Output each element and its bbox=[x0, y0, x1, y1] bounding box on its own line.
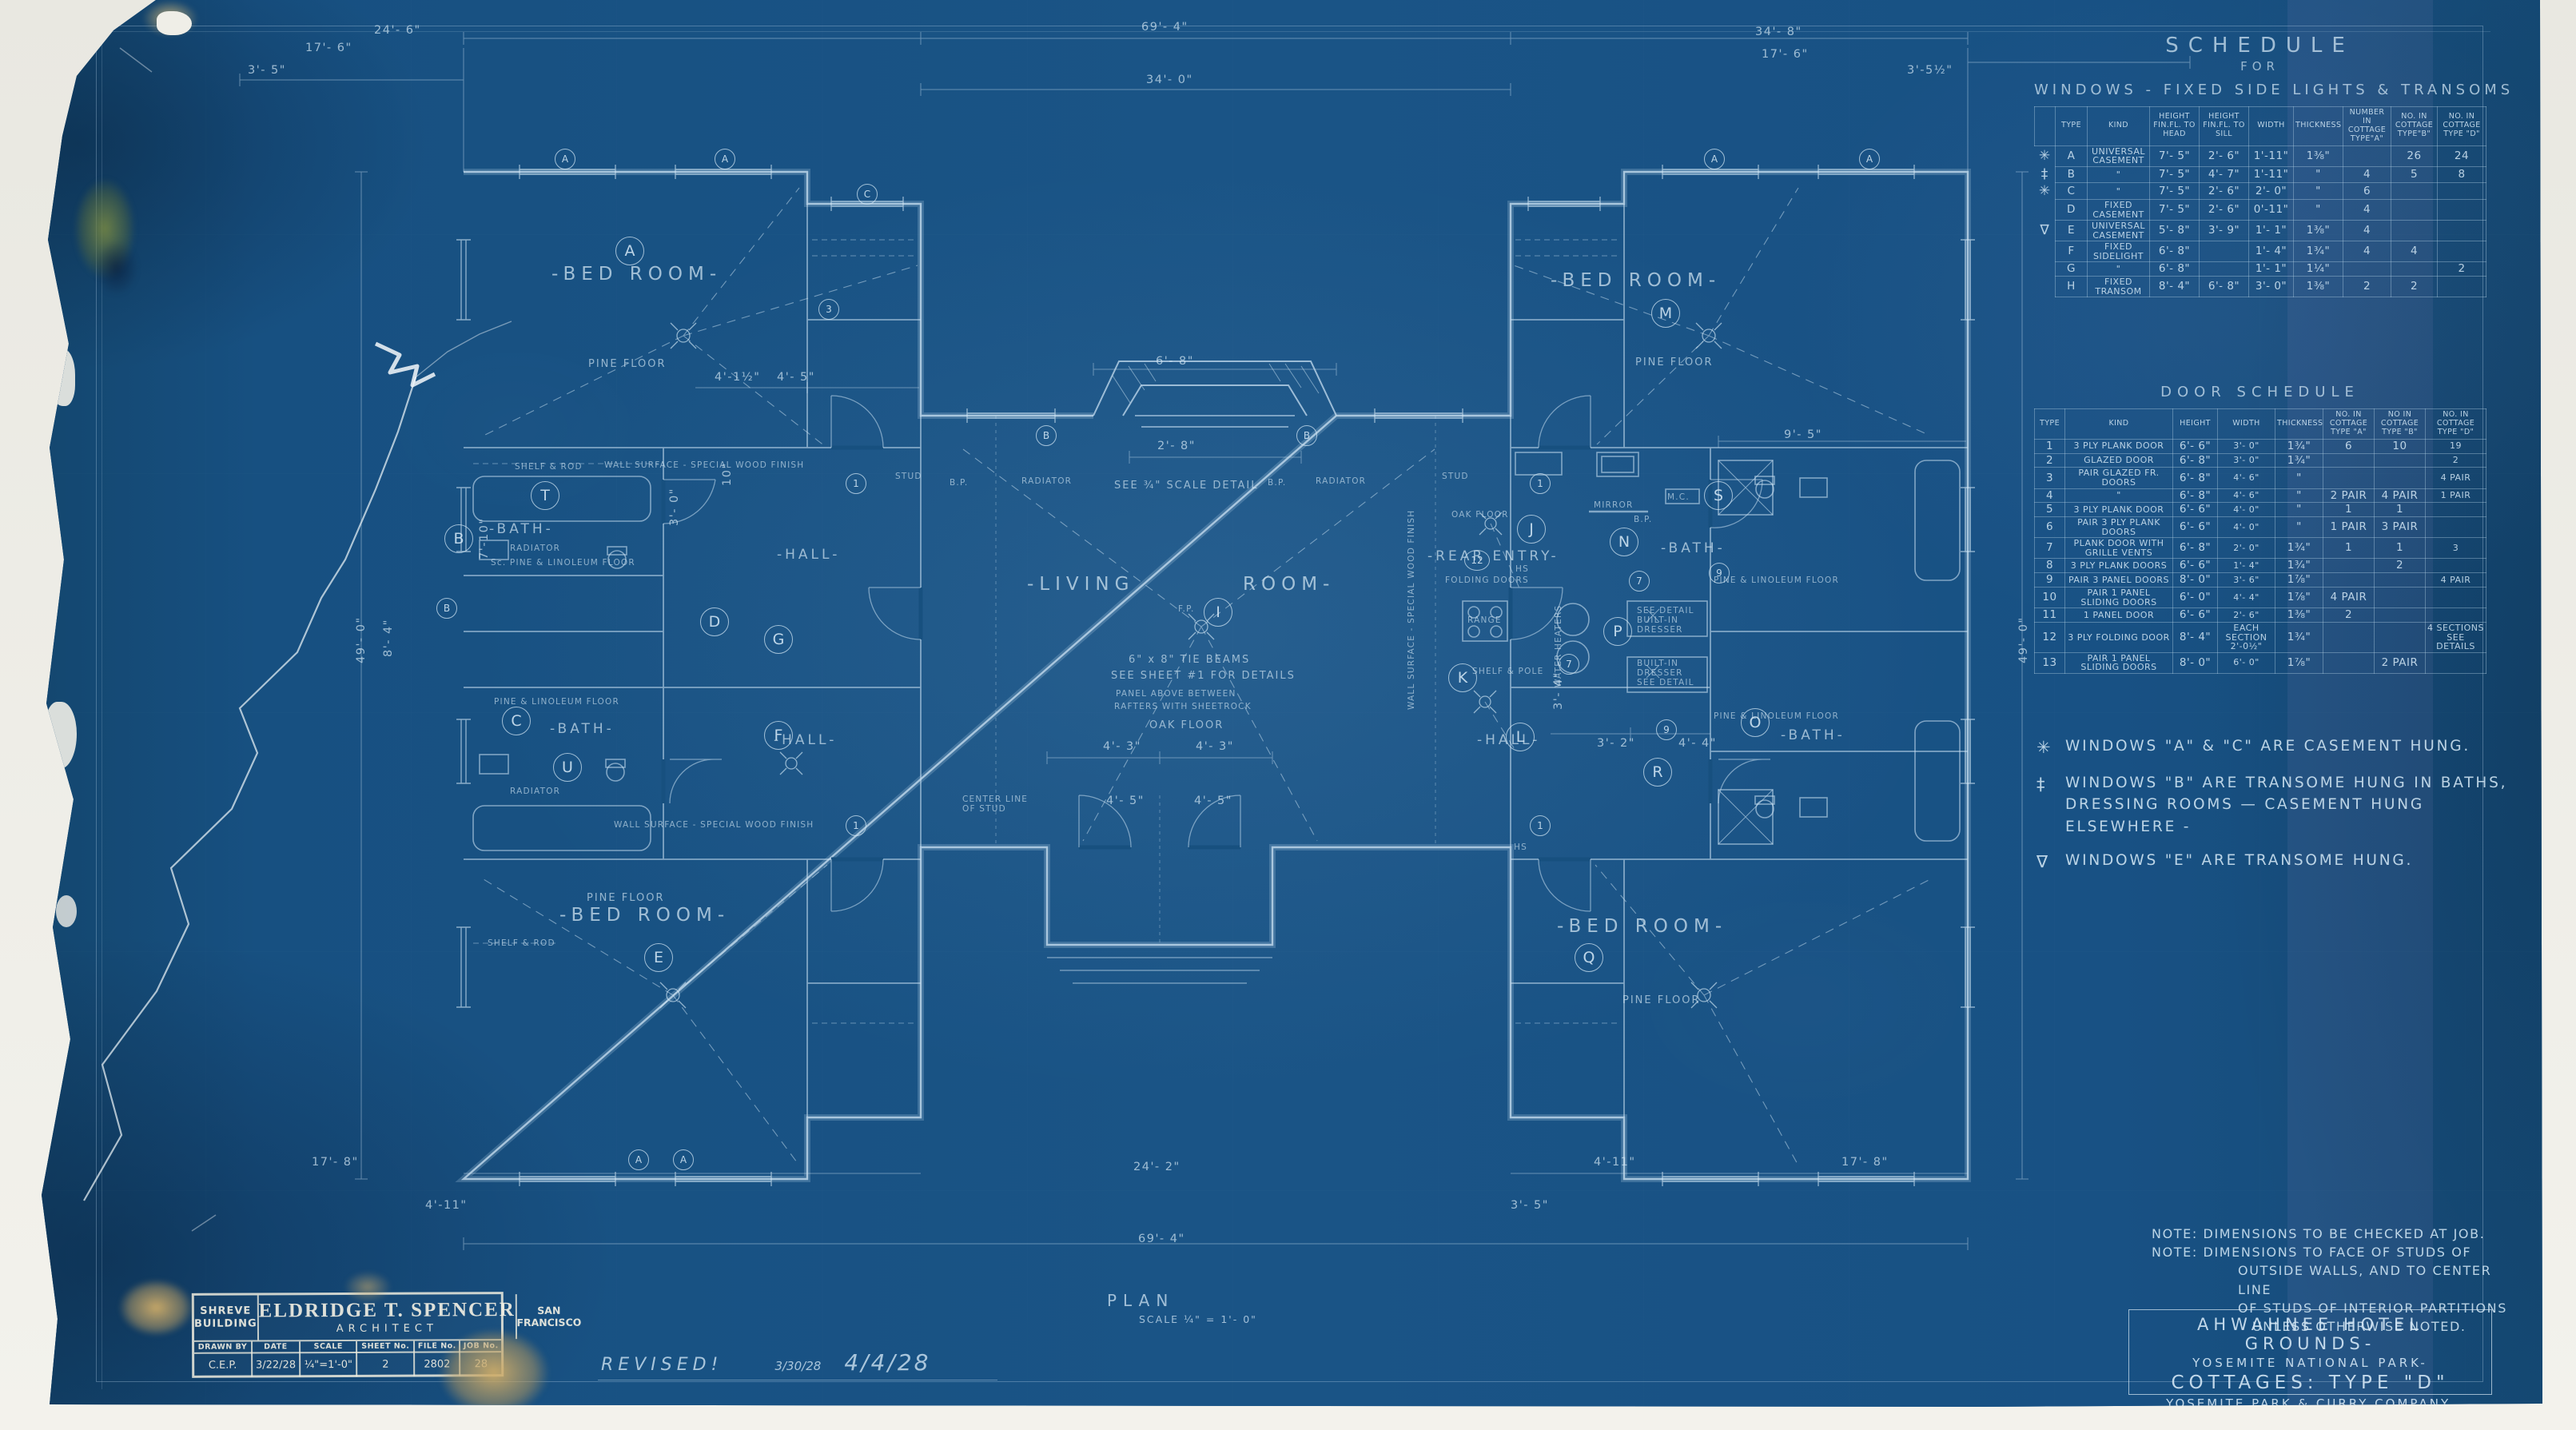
stain-navy bbox=[94, 240, 138, 296]
window-row-count-a: 4 bbox=[2343, 241, 2391, 262]
door-row-width: EACH SECTION 2'-0½" bbox=[2218, 623, 2275, 653]
window-row-height-sill: 6'- 8" bbox=[2200, 277, 2249, 297]
window-row-count-d bbox=[2438, 200, 2486, 221]
door-row-type: 8 bbox=[2035, 559, 2065, 573]
window-mark-a-2: A bbox=[673, 1149, 694, 1170]
window-mark-b-3: B bbox=[436, 598, 457, 619]
window-schedule-table: TYPEKINDHEIGHT FIN.FL. TO HEADHEIGHT FIN… bbox=[2034, 106, 2486, 297]
window-row-type: C bbox=[2056, 183, 2088, 200]
door-row-type: 2 bbox=[2035, 453, 2065, 468]
door-row-height: 6'- 6" bbox=[2173, 559, 2218, 573]
door-schedule-header-cell: NO. IN COTTAGE TYPE "A" bbox=[2323, 409, 2375, 440]
note-radiator-2: RADIATOR bbox=[510, 787, 560, 796]
door-schedule-header-cell: THICKNESS bbox=[2275, 409, 2323, 440]
note-pine-lino-3: PINE & LINOLEUM FLOOR bbox=[494, 697, 619, 707]
porch-steps bbox=[1047, 958, 1272, 983]
door-row-count-a: 1 bbox=[2323, 538, 2375, 559]
window-row-type: G bbox=[2056, 262, 2088, 277]
door-row-width: 6'- 0" bbox=[2218, 652, 2275, 673]
dim-69-4-top: 69'- 4" bbox=[1141, 21, 1188, 34]
note-stud-2: STUD bbox=[1442, 472, 1469, 481]
room-label-bedroom-nw: -BED ROOM- bbox=[551, 264, 722, 285]
window-schedule-header-cell: TYPE bbox=[2056, 107, 2088, 146]
dim-17-6-r: 17'- 6" bbox=[1762, 48, 1809, 61]
door-row-count-d: 4 PAIR bbox=[2426, 573, 2486, 588]
window-row-type: D bbox=[2056, 200, 2088, 221]
window-row-count-b bbox=[2391, 183, 2438, 200]
door-row-height: 6'- 0" bbox=[2173, 588, 2218, 608]
door-row-count-b: 2 bbox=[2375, 559, 2426, 573]
window-row-width: 0'-11" bbox=[2249, 200, 2294, 221]
door-row-count-a: 6 bbox=[2323, 439, 2375, 453]
window-row-count-d bbox=[2438, 277, 2486, 297]
dim-24-6: 24'- 6" bbox=[374, 24, 421, 37]
window-row-thickness: " bbox=[2294, 183, 2343, 200]
door-row-count-b: 1 bbox=[2375, 503, 2426, 517]
door-schedule-table: TYPEKINDHEIGHTWIDTHTHICKNESSNO. IN COTTA… bbox=[2034, 408, 2486, 674]
window-row-count-d bbox=[2438, 183, 2486, 200]
room-circle-o: O bbox=[1741, 708, 1770, 737]
door-mark-1a: 1 bbox=[846, 473, 866, 494]
door-schedule-header-cell: HEIGHT bbox=[2173, 409, 2218, 440]
door-row-type: 9 bbox=[2035, 573, 2065, 588]
door-row-height: 6'- 8" bbox=[2173, 453, 2218, 468]
door-row-type: 1 bbox=[2035, 439, 2065, 453]
door-schedule-row: 10 PAIR 1 PANEL SLIDING DOORS 6'- 0" 4'-… bbox=[2035, 588, 2486, 608]
kitchen-fixtures bbox=[1463, 452, 1699, 673]
door-row-width: 4'- 4" bbox=[2218, 588, 2275, 608]
window-row-count-a: 6 bbox=[2343, 183, 2391, 200]
stamp-field-value: ¼"=1'-0" bbox=[300, 1352, 357, 1376]
window-row-width: 1'-11" bbox=[2249, 166, 2294, 183]
project-line-grounds: AHWAHNEE HOTEL GROUNDS- bbox=[2129, 1315, 2491, 1353]
window-schedule-row: H FIXED TRANSOM 8'- 4" 6'- 8" 3'- 0" 1⅜"… bbox=[2035, 277, 2486, 297]
blueprint-sheet: -BED ROOM- -BED ROOM- -BED ROOM- -BED RO… bbox=[0, 0, 2576, 1430]
room-circle-m: M bbox=[1651, 299, 1680, 328]
note-pine-floor-se: PINE FLOOR bbox=[1622, 994, 1701, 1006]
door-row-height: 6'- 6" bbox=[2173, 439, 2218, 453]
window-row-kind: FIXED SIDELIGHT bbox=[2088, 241, 2150, 262]
stamp-field-value: C.E.P. bbox=[194, 1353, 252, 1377]
window-row-thickness: 1⅜" bbox=[2294, 221, 2343, 241]
room-circle-k: K bbox=[1448, 663, 1477, 692]
door-row-thickness: 1¾" bbox=[2275, 453, 2323, 468]
door-row-kind: PAIR GLAZED FR. DOORS bbox=[2065, 468, 2173, 488]
door-schedule-row: 1 3 PLY PLANK DOOR 6'- 6" 3'- 0" 1¾" 6 1… bbox=[2035, 439, 2486, 453]
door-row-count-d bbox=[2426, 652, 2486, 673]
door-row-thickness: 1⅜" bbox=[2275, 608, 2323, 623]
note-dims-line2: OUTSIDE WALLS, AND TO CENTER LINE bbox=[2152, 1261, 2527, 1298]
window-row-height-sill: 2'- 6" bbox=[2200, 200, 2249, 221]
door-schedule-header-cell: KIND bbox=[2065, 409, 2173, 440]
room-circle-r: R bbox=[1643, 758, 1672, 787]
window-row-height-sill: 4'- 7" bbox=[2200, 166, 2249, 183]
door-mark-9a: 9 bbox=[1709, 563, 1730, 584]
dim-4-5-lv2: 4'- 5" bbox=[1194, 795, 1232, 807]
door-row-thickness: 1¾" bbox=[2275, 559, 2323, 573]
door-row-width: 2'- 6" bbox=[2218, 608, 2275, 623]
note-wall-surface-1: WALL SURFACE - SPECIAL WOOD FINISH bbox=[604, 460, 804, 470]
note-hs-2: HS bbox=[1514, 842, 1527, 852]
hanging-note: ✳ WINDOWS "A" & "C" ARE CASEMENT HUNG. bbox=[2037, 735, 2516, 761]
door-row-height: 8'- 0" bbox=[2173, 652, 2218, 673]
door-schedule-header-cell: NO IN COTTAGE TYPE "B" bbox=[2375, 409, 2426, 440]
door-row-count-a bbox=[2323, 559, 2375, 573]
door-row-count-a: 2 PAIR bbox=[2323, 488, 2375, 503]
door-row-count-b: 1 bbox=[2375, 538, 2426, 559]
closet-shelves bbox=[473, 240, 1619, 1023]
window-row-height-head: 7'- 5" bbox=[2150, 200, 2200, 221]
stamp-field-label: DRAWN BY bbox=[194, 1342, 252, 1353]
window-schedule-row: ✳ C " 7'- 5" 2'- 6" 2'- 0" " 6 bbox=[2035, 183, 2486, 200]
door-swings bbox=[663, 396, 1770, 911]
stain-tan-1 bbox=[118, 1279, 194, 1336]
window-row-thickness: 1¼" bbox=[2294, 262, 2343, 277]
door-schedule-title: DOOR SCHEDULE bbox=[2034, 384, 2486, 400]
window-row-kind: FIXED TRANSOM bbox=[2088, 277, 2150, 297]
door-row-count-d bbox=[2426, 517, 2486, 538]
window-row-height-head: 7'- 5" bbox=[2150, 166, 2200, 183]
door-row-thickness: 1¾" bbox=[2275, 538, 2323, 559]
door-row-count-a: 2 bbox=[2323, 608, 2375, 623]
revision-note: REVISED! 3/30/28 4/4/28 bbox=[601, 1349, 931, 1376]
window-hanging-notes: ✳ WINDOWS "A" & "C" ARE CASEMENT HUNG. ‡… bbox=[2037, 735, 2516, 886]
dim-3-0-l: 3'- 0" bbox=[668, 488, 681, 526]
window-schedule-row: F FIXED SIDELIGHT 6'- 8" 1'- 4" 1¾" 4 4 bbox=[2035, 241, 2486, 262]
stamp-top-row: SHREVE BUILDING ELDRIDGE T. SPENCER ARCH… bbox=[194, 1294, 501, 1342]
window-row-type: H bbox=[2056, 277, 2088, 297]
door-row-thickness: 1⅞" bbox=[2275, 588, 2323, 608]
note-pine-floor-sw: PINE FLOOR bbox=[587, 892, 665, 904]
note-mc: M.C. bbox=[1667, 492, 1690, 502]
architect-title: ARCHITECT bbox=[336, 1323, 438, 1336]
door-row-width: 4'- 0" bbox=[2218, 517, 2275, 538]
dim-4-4: 4'- 4" bbox=[1678, 737, 1717, 750]
door-row-count-a bbox=[2323, 468, 2375, 488]
project-line-cottage-type: COTTAGES: TYPE "D" bbox=[2129, 1372, 2491, 1393]
window-schedule-row: D FIXED CASEMENT 7'- 5" 2'- 6" 0'-11" " … bbox=[2035, 200, 2486, 221]
fireplace bbox=[1093, 361, 1336, 427]
door-schedule-row: 11 1 PANEL DOOR 6'- 6" 2'- 6" 1⅜" 2 bbox=[2035, 608, 2486, 623]
room-label-bath-c: -BATH- bbox=[550, 721, 615, 737]
window-row-count-a: 4 bbox=[2343, 200, 2391, 221]
window-row-mark bbox=[2035, 200, 2056, 221]
stamp-field-label: FILE No. bbox=[414, 1340, 460, 1352]
window-mark-a-5: A bbox=[1704, 149, 1725, 169]
revision-word: REVISED! bbox=[601, 1355, 723, 1375]
interior-walls bbox=[464, 204, 1968, 1117]
room-circle-g: G bbox=[764, 625, 793, 654]
hanging-note-text: WINDOWS "A" & "C" ARE CASEMENT HUNG. bbox=[2065, 735, 2470, 761]
window-schedule-header-cell: KIND bbox=[2088, 107, 2150, 146]
note-water-heaters: WATER HEATERS bbox=[1554, 605, 1563, 687]
dim-24-2: 24'- 2" bbox=[1133, 1161, 1181, 1173]
window-row-count-d: 2 bbox=[2438, 262, 2486, 277]
window-row-width: 1'- 1" bbox=[2249, 221, 2294, 241]
window-row-count-d: 8 bbox=[2438, 166, 2486, 183]
project-title-block: AHWAHNEE HOTEL GROUNDS- YOSEMITE NATIONA… bbox=[2128, 1309, 2492, 1395]
dim-2-8-fp: 2'- 8" bbox=[1157, 440, 1196, 452]
door-row-type: 10 bbox=[2035, 588, 2065, 608]
window-row-count-d bbox=[2438, 221, 2486, 241]
revision-underline bbox=[598, 1380, 997, 1380]
window-row-mark: ✳ bbox=[2035, 145, 2056, 166]
door-schedule: DOOR SCHEDULE TYPEKINDHEIGHTWIDTHTHICKNE… bbox=[2034, 376, 2486, 674]
window-row-mark bbox=[2035, 241, 2056, 262]
door-row-type: 12 bbox=[2035, 623, 2065, 653]
note-shelf-rod-2: SHELF & ROD bbox=[488, 938, 555, 948]
door-schedule-row: 5 3 PLY PLANK DOOR 6'- 6" 4'- 0" " 1 1 bbox=[2035, 503, 2486, 517]
note-tie-beams-1: 6" x 8" TIE BEAMS bbox=[1129, 654, 1250, 666]
window-mark-a-6: A bbox=[1859, 149, 1880, 169]
window-row-count-b bbox=[2391, 200, 2438, 221]
window-row-count-a: 4 bbox=[2343, 221, 2391, 241]
window-row-type: B bbox=[2056, 166, 2088, 183]
door-schedule-row: 3 PAIR GLAZED FR. DOORS 6'- 8" 4'- 6" " … bbox=[2035, 468, 2486, 488]
window-row-count-a: 4 bbox=[2343, 166, 2391, 183]
window-row-count-a bbox=[2343, 262, 2391, 277]
window-row-height-sill bbox=[2200, 262, 2249, 277]
door-row-count-d bbox=[2426, 559, 2486, 573]
window-schedule-header-cell: HEIGHT FIN.FL. TO HEAD bbox=[2150, 107, 2200, 146]
hanging-note: ∇ WINDOWS "E" ARE TRANSOME HUNG. bbox=[2037, 850, 2516, 875]
dim-10: 10" bbox=[721, 462, 734, 486]
door-row-count-a: 1 PAIR bbox=[2323, 517, 2375, 538]
dim-49-0-l: 49'- 0" bbox=[355, 616, 368, 663]
window-row-mark: ✳ bbox=[2035, 183, 2056, 200]
door-row-count-d: 4 PAIR bbox=[2426, 468, 2486, 488]
dim-4-1h-a: 4'-1½" bbox=[715, 371, 760, 384]
window-schedule-header-cell bbox=[2035, 107, 2056, 146]
window-row-kind: " bbox=[2088, 166, 2150, 183]
window-schedule-row: ∇ E UNIVERSAL CASEMENT 5'- 8" 3'- 9" 1'-… bbox=[2035, 221, 2486, 241]
note-center-line: CENTER LINE OF STUD bbox=[962, 795, 1028, 814]
door-schedule-row: 4 " 6'- 8" 4'- 6" " 2 PAIR 4 PAIR 1 PAIR bbox=[2035, 488, 2486, 503]
door-mark-1b: 1 bbox=[846, 815, 866, 836]
dim-4-3-2: 4'- 3" bbox=[1196, 740, 1234, 753]
note-pine-lino-1: PINE & LINOLEUM FLOOR bbox=[1714, 576, 1839, 585]
window-mark-a-1: A bbox=[628, 1149, 649, 1170]
window-row-height-head: 8'- 4" bbox=[2150, 277, 2200, 297]
window-row-height-head: 7'- 5" bbox=[2150, 183, 2200, 200]
window-row-height-sill: 2'- 6" bbox=[2200, 145, 2249, 166]
room-circle-i: I bbox=[1204, 598, 1232, 627]
door-row-height: 6'- 8" bbox=[2173, 538, 2218, 559]
scanned-blueprint-page: { "plan": { "rooms": { "bed_room": "-BED… bbox=[0, 0, 2576, 1430]
note-radiator-4: RADIATOR bbox=[1316, 476, 1366, 486]
door-row-count-b bbox=[2375, 588, 2426, 608]
dim-4-5-a: 4'- 5" bbox=[777, 371, 815, 384]
note-range: RANGE bbox=[1467, 615, 1502, 625]
door-row-count-d: 3 bbox=[2426, 538, 2486, 559]
door-row-count-b bbox=[2375, 573, 2426, 588]
door-row-kind: PLANK DOOR WITH GRILLE VENTS bbox=[2065, 538, 2173, 559]
window-schedule-title: SCHEDULE bbox=[2034, 34, 2486, 58]
note-pine-floor-nw: PINE FLOOR bbox=[588, 358, 667, 370]
door-row-width: 3'- 0" bbox=[2218, 453, 2275, 468]
door-mark-1c: 1 bbox=[1530, 473, 1551, 494]
door-row-count-a bbox=[2323, 623, 2375, 653]
door-schedule-header-cell: TYPE bbox=[2035, 409, 2065, 440]
door-row-count-b: 10 bbox=[2375, 439, 2426, 453]
note-sc-pine-lino: Sc. PINE & LINOLEUM FLOOR bbox=[491, 558, 635, 568]
door-row-count-b bbox=[2375, 623, 2426, 653]
dim-69-4-bot: 69'- 4" bbox=[1138, 1233, 1185, 1245]
door-schedule-row: 2 GLAZED DOOR 6'- 8" 3'- 0" 1¾" 2 bbox=[2035, 453, 2486, 468]
window-row-width: 2'- 0" bbox=[2249, 183, 2294, 200]
room-circle-b: B bbox=[444, 524, 473, 553]
note-built-in-dresser-2: BUILT-IN DRESSER SEE DETAIL bbox=[1637, 659, 1694, 687]
door-row-kind: 3 PLY PLANK DOORS bbox=[2065, 559, 2173, 573]
door-row-width: 4'- 6" bbox=[2218, 488, 2275, 503]
door-row-count-d: 19 bbox=[2426, 439, 2486, 453]
stamp-city: SAN FRANCISCO bbox=[517, 1294, 581, 1339]
window-schedule-header-cell: HEIGHT FIN.FL. TO SILL bbox=[2200, 107, 2249, 146]
window-row-count-b: 5 bbox=[2391, 166, 2438, 183]
door-mark-1d: 1 bbox=[1530, 815, 1551, 836]
window-mark-b-1: B bbox=[1036, 425, 1057, 446]
note-pine-floor-ne: PINE FLOOR bbox=[1635, 357, 1714, 368]
window-row-mark bbox=[2035, 262, 2056, 277]
door-schedule-row: 13 PAIR 1 PANEL SLIDING DOORS 8'- 0" 6'-… bbox=[2035, 652, 2486, 673]
window-row-kind: UNIVERSAL CASEMENT bbox=[2088, 145, 2150, 166]
stain-green bbox=[74, 177, 136, 280]
door-row-kind: 3 PLY FOLDING DOOR bbox=[2065, 623, 2173, 653]
window-row-height-head: 7'- 5" bbox=[2150, 145, 2200, 166]
room-label-bedroom-sw: -BED ROOM- bbox=[559, 905, 730, 926]
door-schedule-row: 12 3 PLY FOLDING DOOR 8'- 4" EACH SECTIO… bbox=[2035, 623, 2486, 653]
door-row-type: 6 bbox=[2035, 517, 2065, 538]
door-row-height: 6'- 6" bbox=[2173, 503, 2218, 517]
bath-fixtures bbox=[473, 460, 1960, 850]
exterior-walls bbox=[464, 172, 1968, 1179]
note-built-in-dresser-1: SEE DETAIL BUILT-IN DRESSER bbox=[1637, 606, 1694, 635]
window-schedule-for: FOR bbox=[2034, 59, 2486, 74]
dim-34-8: 34'- 8" bbox=[1755, 26, 1802, 38]
door-mark-7a: 7 bbox=[1629, 571, 1650, 592]
plan-caption: PLAN SCALE ¼" = 1'- 0" bbox=[1107, 1291, 1257, 1325]
room-circle-d: D bbox=[700, 607, 729, 636]
door-row-thickness: " bbox=[2275, 503, 2323, 517]
door-schedule-row: 6 PAIR 3 PLY PLANK DOORS 6'- 6" 4'- 0" "… bbox=[2035, 517, 2486, 538]
door-mark-7b: 7 bbox=[1559, 654, 1579, 675]
door-row-kind: GLAZED DOOR bbox=[2065, 453, 2173, 468]
window-schedule-header-row: TYPEKINDHEIGHT FIN.FL. TO HEADHEIGHT FIN… bbox=[2035, 107, 2486, 146]
room-label-hall-1: -HALL- bbox=[777, 547, 840, 563]
dim-3-5h: 3'-5½" bbox=[1907, 64, 1953, 77]
window-row-type: A bbox=[2056, 145, 2088, 166]
door-row-count-b bbox=[2375, 468, 2426, 488]
dim-7-10: 7'-10" bbox=[478, 517, 491, 560]
dim-9-5: 9'- 5" bbox=[1784, 428, 1822, 441]
dim-17-8-bl: 17'- 8" bbox=[312, 1156, 359, 1169]
window-symbols bbox=[456, 165, 1975, 1186]
door-row-kind: PAIR 3 PLY PLANK DOORS bbox=[2065, 517, 2173, 538]
revision-date-1: 3/30/28 bbox=[774, 1359, 821, 1373]
window-row-kind: FIXED CASEMENT bbox=[2088, 200, 2150, 221]
window-row-count-b bbox=[2391, 221, 2438, 241]
note-oak-floor-living: OAK FLOOR bbox=[1149, 719, 1224, 731]
door-row-width: 2'- 0" bbox=[2218, 538, 2275, 559]
dim-4-11-br: 4'-11" bbox=[1594, 1156, 1636, 1169]
door-schedule-row: 9 PAIR 3 PANEL DOORS 8'- 0" 3'- 6" 1⅞" 4… bbox=[2035, 573, 2486, 588]
window-row-height-sill: 2'- 6" bbox=[2200, 183, 2249, 200]
window-row-count-a bbox=[2343, 145, 2391, 166]
window-row-kind: " bbox=[2088, 183, 2150, 200]
stamp-fields-table: DRAWN BYDATESCALESHEET No.FILE No.JOB No… bbox=[194, 1340, 501, 1377]
room-label-rear-entry: -REAR ENTRY- bbox=[1427, 548, 1559, 564]
door-gaps bbox=[663, 448, 1710, 859]
plan-caption-scale: SCALE ¼" = 1'- 0" bbox=[1139, 1313, 1257, 1325]
window-row-count-b: 4 bbox=[2391, 241, 2438, 262]
stamp-field-label: SHEET No. bbox=[357, 1341, 415, 1352]
room-circle-u: U bbox=[553, 753, 582, 782]
dim-8-4: 8'- 4" bbox=[382, 619, 395, 657]
door-row-thickness: " bbox=[2275, 517, 2323, 538]
room-label-bath-b: -BATH- bbox=[489, 521, 554, 537]
door-row-type: 7 bbox=[2035, 538, 2065, 559]
door-row-count-b bbox=[2375, 453, 2426, 468]
door-row-kind: 3 PLY PLANK DOOR bbox=[2065, 439, 2173, 453]
window-mark-b-2: B bbox=[1296, 425, 1317, 446]
room-label-hall-2: -HALL- bbox=[774, 732, 837, 748]
door-row-width: 4'- 6" bbox=[2218, 468, 2275, 488]
dim-17-6-l: 17'- 6" bbox=[305, 42, 352, 54]
door-row-kind: PAIR 1 PANEL SLIDING DOORS bbox=[2065, 652, 2173, 673]
room-circle-l: L bbox=[1506, 723, 1535, 751]
window-schedule-row: G " 6'- 8" 1'- 1" 1¼" 2 bbox=[2035, 262, 2486, 277]
door-row-height: 8'- 4" bbox=[2173, 623, 2218, 653]
door-row-thickness: 1¾" bbox=[2275, 623, 2323, 653]
window-schedule-header-cell: NUMBER IN COTTAGE TYPE"A" bbox=[2343, 107, 2391, 146]
door-mark-3: 3 bbox=[818, 299, 839, 320]
door-row-count-d bbox=[2426, 588, 2486, 608]
revision-date-2: 4/4/28 bbox=[844, 1349, 930, 1376]
door-row-count-d bbox=[2426, 503, 2486, 517]
stamp-field-value: 28 bbox=[460, 1352, 502, 1376]
door-row-height: 6'- 8" bbox=[2173, 488, 2218, 503]
note-stud-1: STUD bbox=[895, 472, 922, 481]
dimension-lines bbox=[240, 32, 2190, 1250]
door-row-height: 6'- 8" bbox=[2173, 468, 2218, 488]
door-row-count-d: 4 SECTIONS SEE DETAILS bbox=[2426, 623, 2486, 653]
window-row-height-head: 6'- 8" bbox=[2150, 262, 2200, 277]
door-schedule-header-cell: WIDTH bbox=[2218, 409, 2275, 440]
paper-chip-1 bbox=[157, 11, 192, 35]
door-mark-12: 12 bbox=[1464, 550, 1490, 571]
window-row-thickness: 1⅜" bbox=[2294, 145, 2343, 166]
dim-4-3-1: 4'- 3" bbox=[1103, 740, 1141, 753]
note-dims-line1: NOTE: DIMENSIONS TO FACE OF STUDS OF bbox=[2152, 1243, 2527, 1261]
dim-3-5-l: 3'- 5" bbox=[248, 64, 286, 77]
door-row-height: 6'- 6" bbox=[2173, 517, 2218, 538]
window-row-mark: ∇ bbox=[2035, 221, 2056, 241]
note-shelf-rod-1: SHELF & ROD bbox=[515, 462, 583, 472]
project-line-park: YOSEMITE NATIONAL PARK- bbox=[2129, 1356, 2491, 1370]
note-panel-above-1: PANEL ABOVE BETWEEN bbox=[1116, 689, 1236, 699]
room-label-hall-3: -HALL- bbox=[1477, 732, 1540, 748]
note-bp-2: B.P. bbox=[1268, 478, 1286, 488]
stamp-field-value: 2802 bbox=[414, 1352, 460, 1376]
dim-6-8-fp: 6'- 8" bbox=[1156, 355, 1194, 368]
room-label-bath-n: -BATH- bbox=[1661, 540, 1726, 556]
door-row-count-a bbox=[2323, 573, 2375, 588]
door-schedule-row: 8 3 PLY PLANK DOORS 6'- 6" 1'- 4" 1¾" 2 bbox=[2035, 559, 2486, 573]
stamp-values-row: C.E.P.3/22/28¼"=1'-0"2280228 bbox=[194, 1352, 501, 1377]
door-row-count-d: 1 PAIR bbox=[2426, 488, 2486, 503]
window-row-thickness: 1¾" bbox=[2294, 241, 2343, 262]
door-row-width: 3'- 0" bbox=[2218, 439, 2275, 453]
